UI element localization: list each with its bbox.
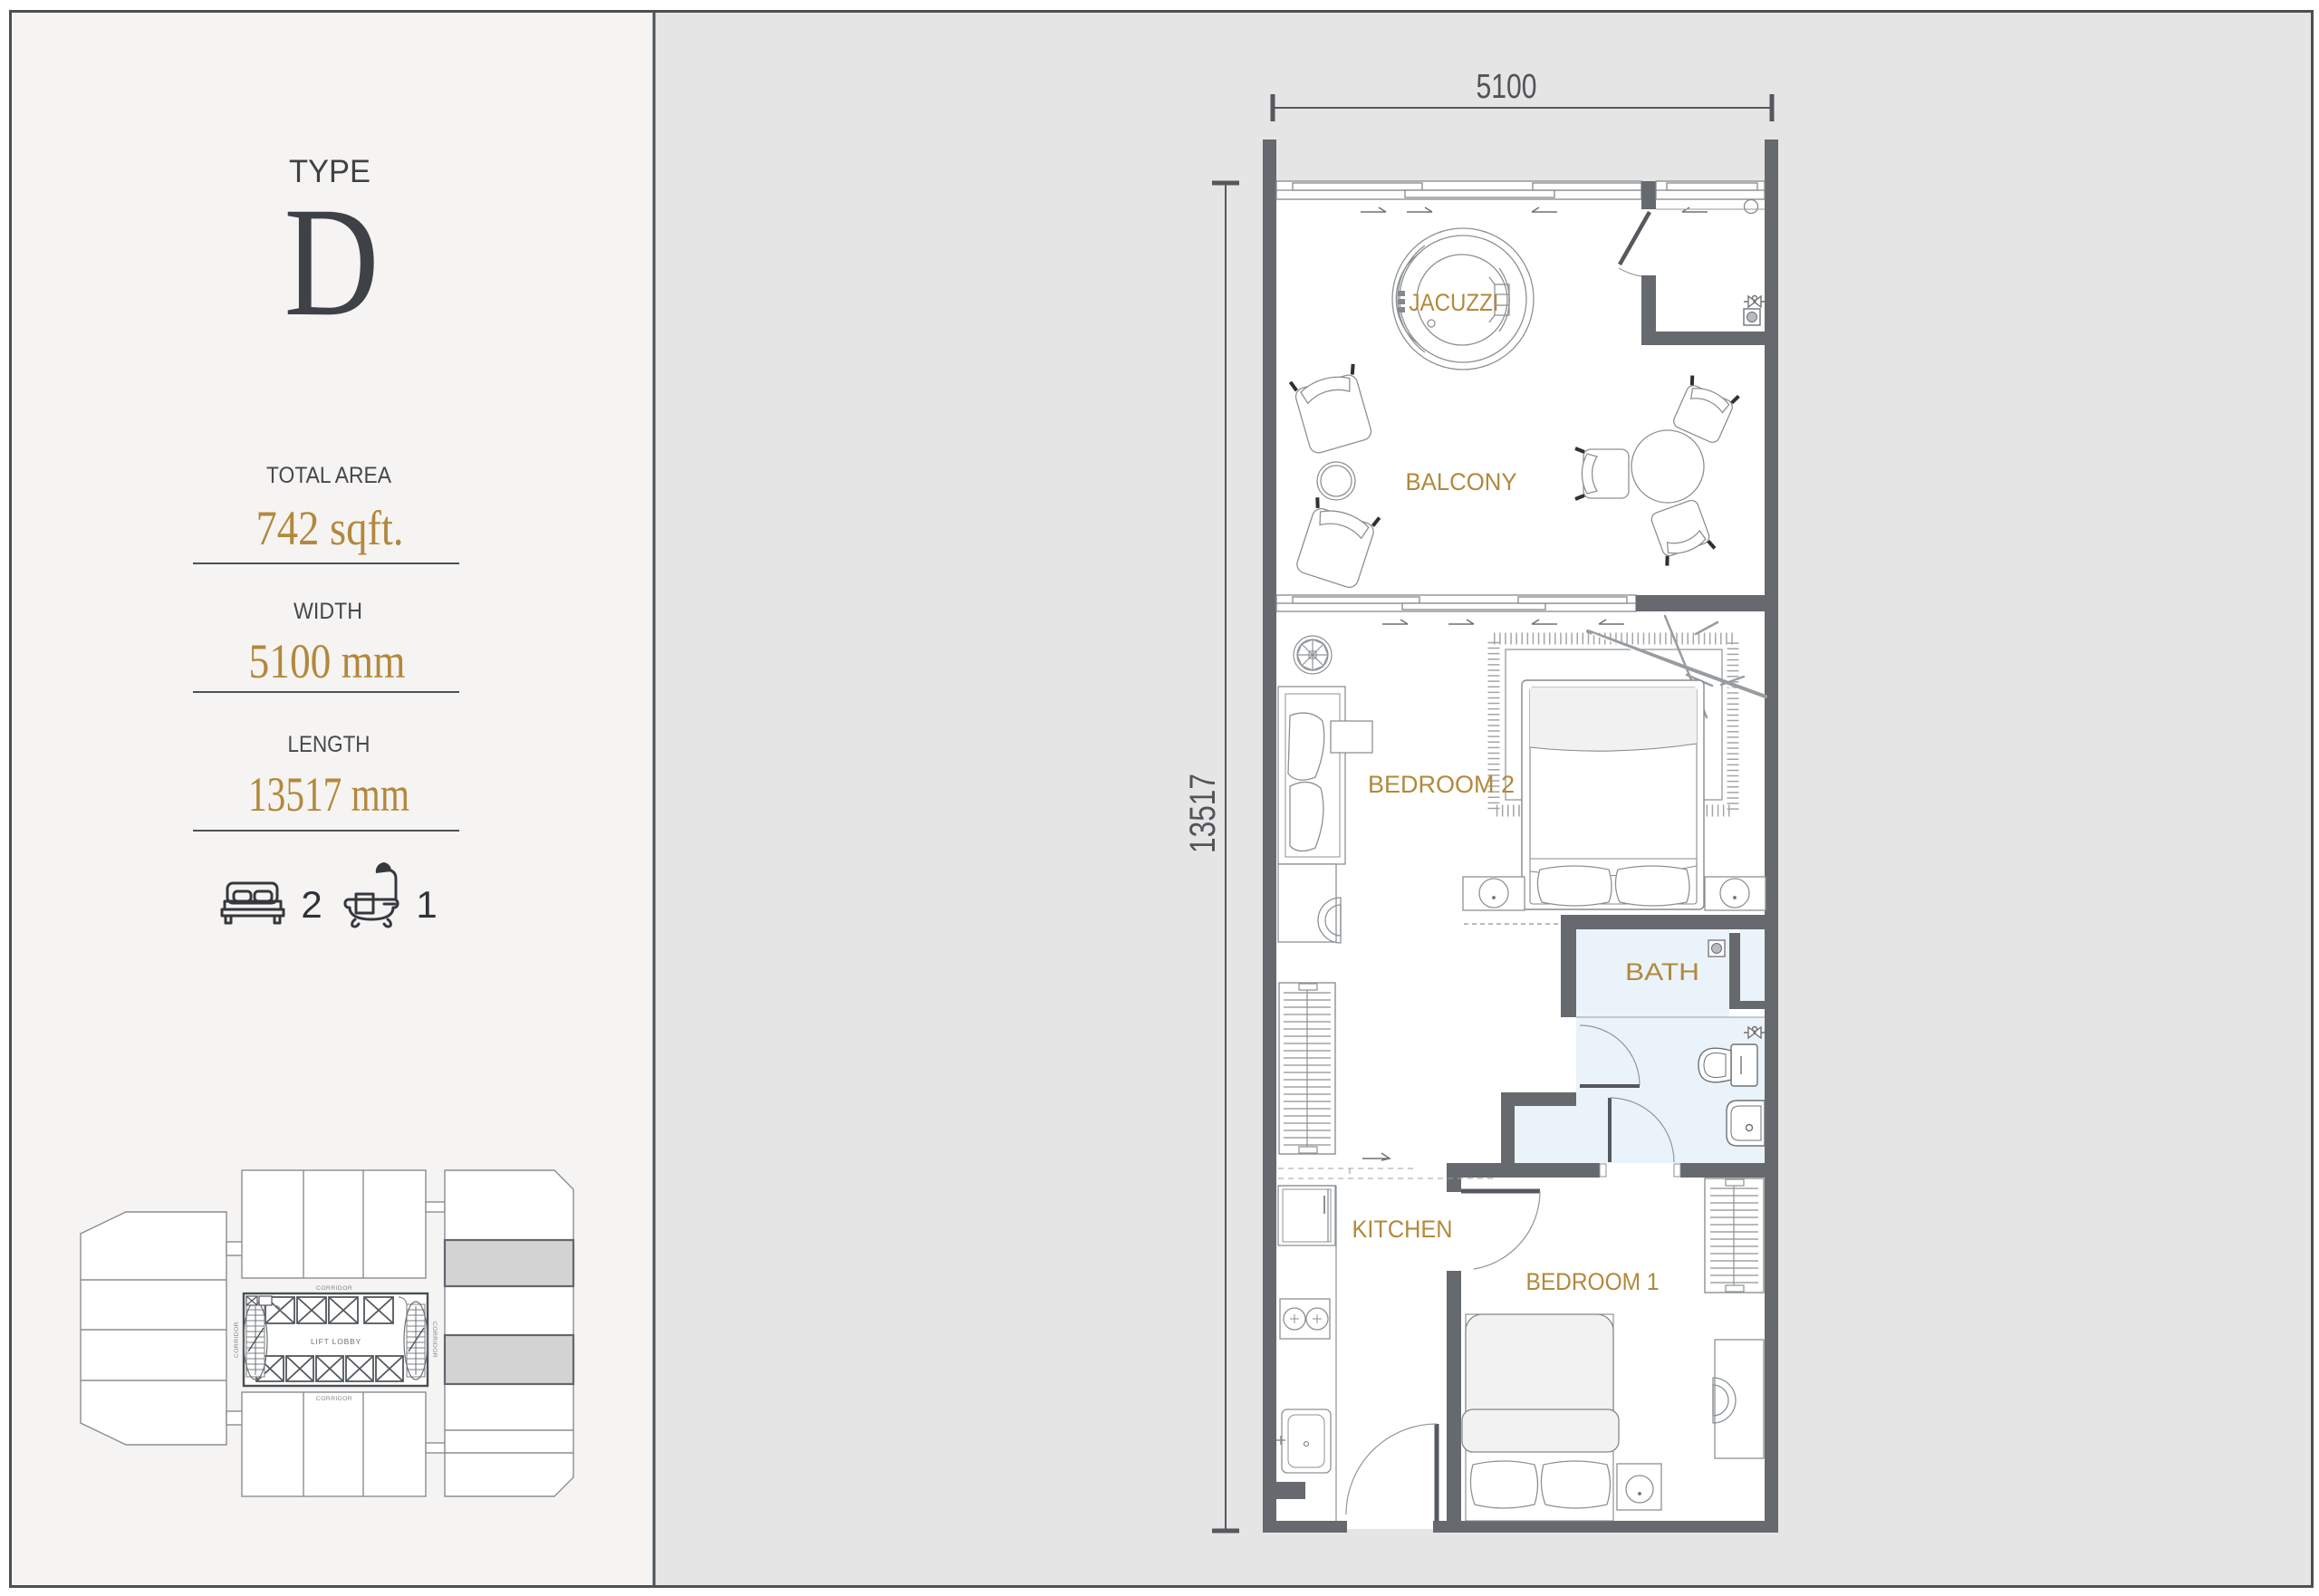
svg-text:CORRIDOR: CORRIDOR [431,1322,438,1358]
svg-text:TOTAL AREA: TOTAL AREA [266,463,391,488]
svg-text:WIDTH: WIDTH [293,599,362,624]
svg-text:5100 mm: 5100 mm [249,634,406,688]
svg-text:D: D [284,175,380,349]
svg-text:CORRIDOR: CORRIDOR [234,1322,240,1358]
svg-text:742 sqft.: 742 sqft. [256,501,404,555]
svg-text:BALCONY: BALCONY [1406,468,1517,495]
svg-text:KITCHEN: KITCHEN [1352,1216,1453,1243]
svg-text:JACUZZI: JACUZZI [1410,289,1499,316]
svg-text:5100: 5100 [1477,68,1537,106]
svg-text:LIFT LOBBY: LIFT LOBBY [311,1337,361,1346]
svg-text:BEDROOM 2: BEDROOM 2 [1368,771,1515,798]
svg-text:BATH: BATH [1625,958,1699,985]
svg-text:13517 mm: 13517 mm [248,767,409,822]
svg-text:13517: 13517 [1183,774,1223,853]
svg-text:1: 1 [416,883,437,926]
svg-text:2: 2 [301,883,322,926]
svg-text:CORRIDOR: CORRIDOR [316,1396,352,1402]
svg-text:BEDROOM 1: BEDROOM 1 [1526,1268,1660,1295]
svg-text:CORRIDOR: CORRIDOR [316,1285,352,1292]
svg-text:LENGTH: LENGTH [288,732,370,757]
